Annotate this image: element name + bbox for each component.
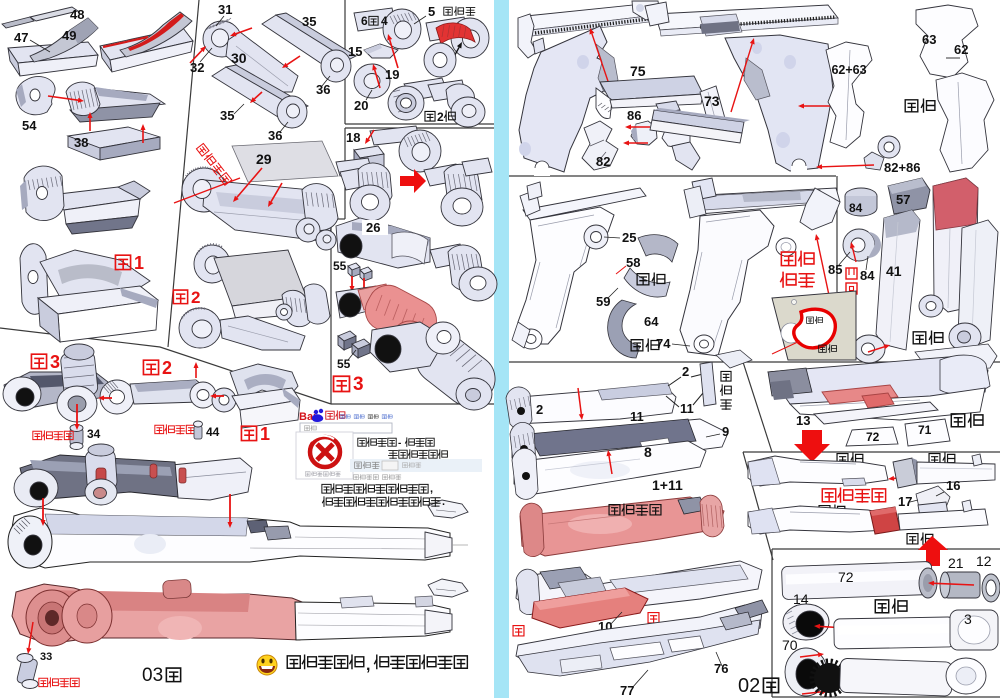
svg-text:63: 63 <box>922 32 936 47</box>
svg-text:2: 2 <box>536 402 543 417</box>
svg-text:34: 34 <box>87 427 101 441</box>
svg-text:2: 2 <box>162 358 172 378</box>
svg-text:30: 30 <box>231 50 247 66</box>
svg-text:3: 3 <box>353 374 364 395</box>
svg-text:25: 25 <box>622 230 636 245</box>
svg-text:48: 48 <box>70 7 84 22</box>
svg-text:44: 44 <box>206 425 220 439</box>
svg-text:,: , <box>366 657 370 674</box>
svg-text:16: 16 <box>946 478 960 493</box>
svg-text:,: , <box>430 483 433 495</box>
svg-text:15: 15 <box>348 44 362 59</box>
svg-text:77: 77 <box>620 683 634 698</box>
svg-text:82+86: 82+86 <box>884 160 921 175</box>
svg-text:74: 74 <box>656 336 671 351</box>
svg-text:33: 33 <box>40 651 52 663</box>
svg-text:3: 3 <box>964 611 972 627</box>
svg-text:62: 62 <box>954 42 968 57</box>
svg-text:29: 29 <box>256 151 272 167</box>
svg-text:8: 8 <box>644 444 652 460</box>
svg-text:20: 20 <box>354 98 368 113</box>
svg-text:14: 14 <box>793 591 809 607</box>
svg-text:57: 57 <box>896 192 910 207</box>
svg-text:84: 84 <box>860 268 875 283</box>
svg-text:21: 21 <box>948 555 964 571</box>
svg-text:11: 11 <box>630 409 644 424</box>
svg-text:72: 72 <box>838 569 854 585</box>
svg-text:62+63: 62+63 <box>831 63 866 77</box>
svg-text:38: 38 <box>74 135 88 150</box>
svg-text:47: 47 <box>14 30 28 45</box>
svg-text:49: 49 <box>62 28 76 43</box>
svg-text:18: 18 <box>346 130 360 145</box>
svg-text:-: - <box>398 438 401 449</box>
svg-text:75: 75 <box>630 63 646 79</box>
svg-text:1: 1 <box>260 424 270 444</box>
svg-text:.: . <box>442 496 445 508</box>
svg-text:82: 82 <box>596 154 610 169</box>
svg-text:86: 86 <box>627 108 641 123</box>
svg-text:1: 1 <box>134 253 144 273</box>
svg-text:17: 17 <box>898 494 912 509</box>
svg-text:13: 13 <box>796 413 810 428</box>
svg-text:58: 58 <box>626 255 640 270</box>
svg-text:4: 4 <box>381 14 388 28</box>
svg-text:32: 32 <box>190 60 204 75</box>
svg-text:35: 35 <box>302 14 316 29</box>
svg-text:84: 84 <box>849 201 863 215</box>
svg-text:73: 73 <box>704 93 720 109</box>
svg-text:3: 3 <box>50 352 60 372</box>
svg-text:6: 6 <box>361 14 368 28</box>
svg-text:35: 35 <box>220 108 234 123</box>
svg-text:9: 9 <box>722 424 729 439</box>
svg-text:2: 2 <box>682 364 689 379</box>
svg-text:1+11: 1+11 <box>652 477 683 493</box>
svg-text:59: 59 <box>596 294 610 309</box>
svg-text:03: 03 <box>142 665 163 686</box>
svg-text:11: 11 <box>680 401 694 416</box>
svg-text:55: 55 <box>333 259 347 273</box>
svg-text:64: 64 <box>644 314 659 329</box>
svg-text:19: 19 <box>385 67 399 82</box>
svg-text:2: 2 <box>191 288 200 307</box>
svg-text:72: 72 <box>866 430 880 444</box>
svg-text:85: 85 <box>828 262 842 277</box>
svg-text:26: 26 <box>366 220 380 235</box>
svg-text:02: 02 <box>738 675 760 697</box>
svg-text:12: 12 <box>976 553 992 569</box>
svg-text:70: 70 <box>782 637 798 653</box>
svg-text:54: 54 <box>22 118 37 133</box>
svg-text:71: 71 <box>918 423 932 437</box>
svg-text:36: 36 <box>268 128 282 143</box>
svg-text:2: 2 <box>437 110 444 124</box>
svg-text:41: 41 <box>886 263 902 279</box>
svg-text:31: 31 <box>218 2 232 17</box>
svg-text:5: 5 <box>428 4 435 19</box>
